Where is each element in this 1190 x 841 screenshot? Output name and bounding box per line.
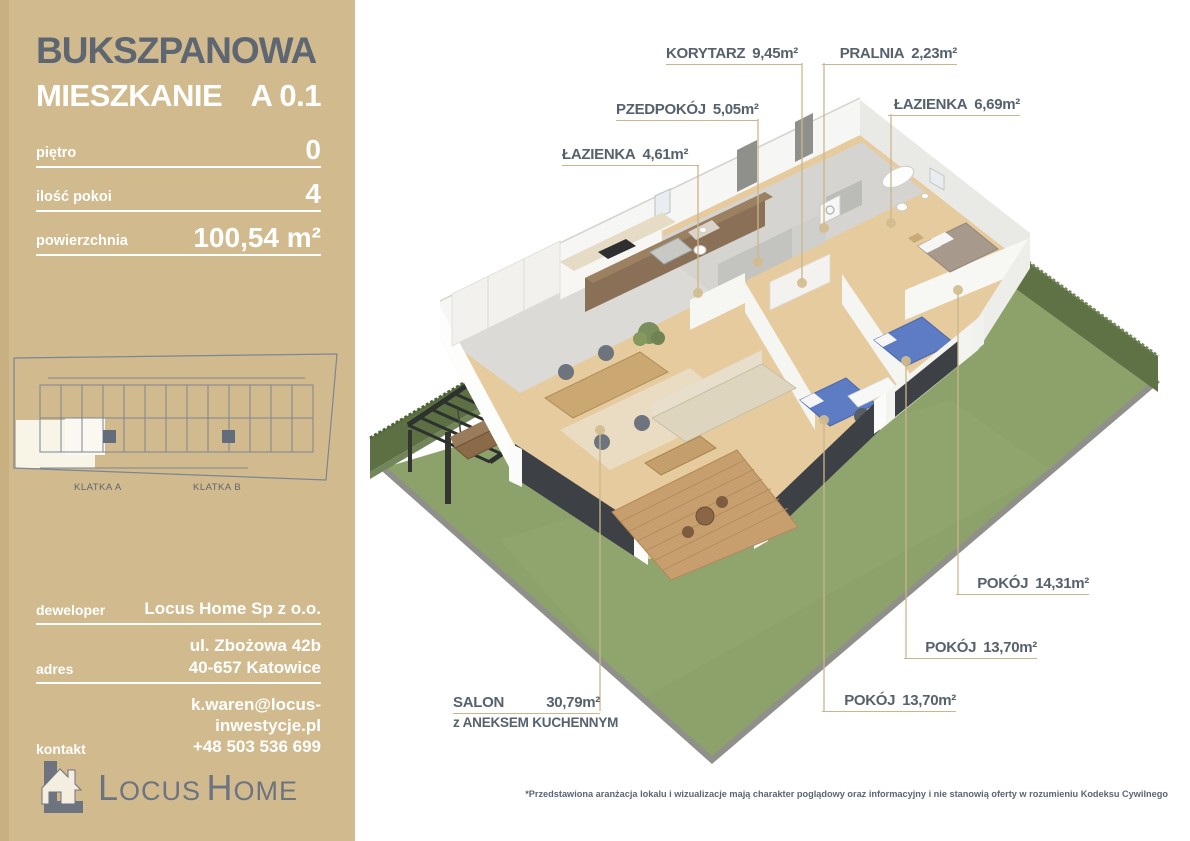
developer-logo: LOCUS HOME: [34, 757, 298, 819]
contact-row: kontakt k.waren@locus-inwestycje.pl +48 …: [36, 694, 321, 762]
contact-phone: +48 503 536 699: [86, 736, 321, 757]
spec-row-floor: piętro 0: [36, 132, 321, 168]
address-value: ul. Zbożowa 42b 40-657 Katowice: [189, 635, 321, 678]
room-area: 9,45m²: [752, 45, 798, 62]
stairwell-a-marker: [103, 430, 116, 443]
room-name: KORYTARZ: [666, 45, 745, 62]
room-label-lazienka-mala: ŁAZIENKA 4,61m²: [562, 146, 699, 166]
spec-value: 4: [305, 181, 321, 208]
contact-label: kontakt: [36, 741, 86, 758]
room-label-salon: SALON 30,79m² z ANEKSEM KUCHENNYM: [453, 694, 600, 730]
room-label-korytarz: KORYTARZ 9,45m²: [666, 45, 802, 65]
building-site-plan: KLATKA A KLATKA B: [8, 350, 348, 510]
locus-home-icon: [34, 757, 88, 819]
project-title: BUKSZPANOWA: [36, 30, 321, 72]
spec-value: 0: [305, 137, 321, 164]
unit-label: MIESZKANIE: [36, 78, 222, 114]
room-name: POKÓJ: [925, 639, 976, 656]
room-subtitle: z ANEKSEM KUCHENNYM: [453, 715, 600, 730]
room-name: PZEDPOKÓJ: [616, 101, 706, 118]
room-area: 13,70m²: [983, 639, 1037, 656]
unit-code: A 0.1: [251, 78, 321, 114]
address-label: adres: [36, 661, 73, 678]
room-label-pralnia: PRALNIA 2,23m²: [822, 45, 957, 65]
room-area: 14,31m²: [1035, 575, 1089, 592]
spec-label: ilość pokoi: [36, 189, 112, 208]
logo-text: LOCUS HOME: [98, 767, 298, 809]
stairwell-b-marker: [222, 430, 235, 443]
room-area: 6,69m²: [974, 96, 1020, 113]
spec-row-area: powierzchnia 100,54 m²: [36, 220, 321, 256]
room-name: ŁAZIENKA: [562, 146, 635, 163]
room-area: 2,23m²: [911, 45, 957, 62]
stairwell-b-label: KLATKA B: [193, 482, 241, 493]
room-area: 5,05m²: [713, 101, 759, 118]
developer-name: Locus Home Sp z o.o.: [144, 598, 321, 619]
developer-label: deweloper: [36, 602, 105, 619]
room-area: 4,61m²: [642, 146, 688, 163]
room-label-pokoj-2: POKÓJ 13,70m²: [904, 639, 1037, 659]
info-sidebar: BUKSZPANOWA MIESZKANIE A 0.1 piętro 0 il…: [0, 0, 355, 841]
spec-table: piętro 0 ilość pokoi 4 powierzchnia 100,…: [36, 132, 321, 256]
room-label-lazienka-duza: ŁAZIENKA 6,69m²: [888, 96, 1020, 116]
address-row: adres ul. Zbożowa 42b 40-657 Katowice: [36, 635, 321, 684]
spec-value: 100,54 m²: [193, 225, 321, 252]
address-line1: ul. Zbożowa 42b: [189, 635, 321, 656]
spec-row-rooms: ilość pokoi 4: [36, 176, 321, 212]
address-line2: 40-657 Katowice: [189, 657, 321, 678]
contact-email: k.waren@locus-inwestycje.pl: [86, 694, 321, 737]
room-name: ŁAZIENKA: [894, 96, 967, 113]
unit-line: MIESZKANIE A 0.1: [36, 78, 321, 114]
flyer-canvas: KORYTARZ 9,45m² PRALNIA 2,23m² PZEDPOKÓJ…: [0, 0, 1190, 841]
spec-label: powierzchnia: [36, 233, 128, 252]
room-name: POKÓJ: [844, 692, 895, 709]
room-name: POKÓJ: [977, 575, 1028, 592]
developer-row: deweloper Locus Home Sp z o.o.: [36, 598, 321, 625]
contact-value: k.waren@locus-inwestycje.pl +48 503 536 …: [86, 694, 321, 758]
contact-block: deweloper Locus Home Sp z o.o. adres ul.…: [36, 598, 321, 772]
room-label-pokoj-1: POKÓJ 14,31m²: [956, 575, 1089, 595]
room-name: PRALNIA: [840, 45, 905, 62]
room-name: SALON: [453, 694, 504, 711]
room-area: 30,79m²: [546, 694, 600, 711]
stairwell-a-label: KLATKA A: [74, 482, 122, 493]
room-area: 13,70m²: [902, 692, 956, 709]
legal-disclaimer: *Przedstawiona aranżacja lokalu i wizual…: [525, 789, 1168, 799]
room-label-przedpokoj: PZEDPOKÓJ 5,05m²: [616, 101, 758, 121]
room-label-pokoj-3: POKÓJ 13,70m²: [822, 692, 956, 712]
spec-label: piętro: [36, 145, 76, 164]
